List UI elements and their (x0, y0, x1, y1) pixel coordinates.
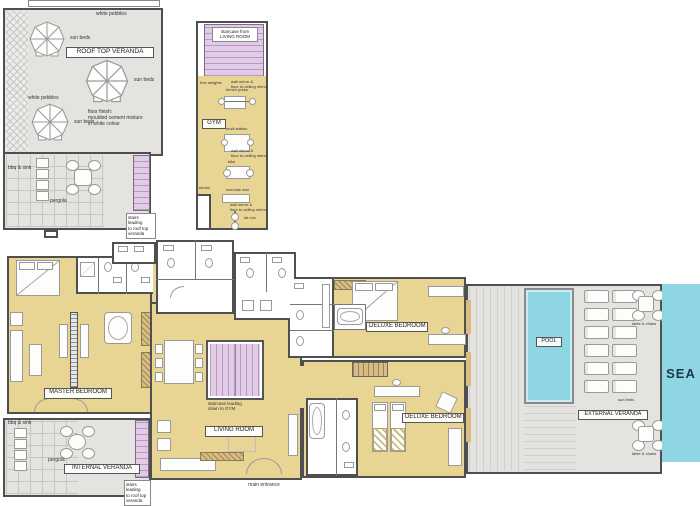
weight-stack (247, 139, 254, 146)
parapet (28, 0, 160, 7)
bathroom-wall (195, 240, 196, 280)
living-room-title: LIVING ROOM (205, 426, 263, 437)
chair (82, 426, 95, 437)
sun-beds-label: sun beds (618, 398, 634, 403)
stairs-note: stairs leading to roof top veranda (124, 480, 151, 506)
master-bedroom-title: MASTER BEDROOM (44, 388, 112, 399)
chair (155, 358, 163, 368)
white-pebbles-label-left: white pebbles (28, 96, 59, 102)
tv-bench (288, 414, 298, 456)
bench-press-label: bench press (226, 88, 248, 93)
armchair (10, 312, 23, 326)
wc (246, 268, 254, 278)
gym-notch (198, 194, 211, 228)
sun-lounger (584, 326, 609, 339)
chair (155, 344, 163, 354)
wc (104, 262, 112, 272)
sun-lounger (584, 290, 609, 303)
sun-lounger (584, 308, 609, 321)
bbq-counter (14, 461, 27, 471)
counter (322, 284, 330, 328)
floor-finish-note: floor finish: moulded cement mixture in … (88, 110, 150, 127)
planter (466, 300, 471, 334)
exercise-mat-label: exercise mat (226, 188, 249, 193)
shelf (80, 324, 89, 358)
lat-machine-seat (231, 213, 239, 221)
desk (428, 334, 466, 345)
sofa (10, 330, 23, 382)
chair (155, 372, 163, 382)
multi-station-label: multi station (226, 127, 247, 132)
table-label: table & chairs (632, 452, 656, 457)
sun-lounger (612, 344, 637, 357)
deluxe-bedroom-2-title: DELUXE BEDROOM (402, 413, 464, 423)
basin (113, 277, 122, 283)
white-pebbles-label-top: white pebbles (96, 12, 127, 18)
bbq-sink-label: bbq & sink (8, 166, 31, 172)
internal-veranda-title: INTERNAL VERANDA (64, 464, 140, 474)
deck-planks (469, 287, 521, 471)
desk (374, 386, 420, 397)
bathtub-basin (108, 316, 128, 340)
shower (80, 262, 95, 277)
chair (82, 448, 95, 459)
sun-lounger (584, 362, 609, 375)
sun-lounger (612, 380, 637, 393)
entry-deck (200, 452, 244, 461)
pergola-label: pergola (50, 199, 67, 205)
sea: SEA (662, 284, 700, 462)
appliance (242, 300, 254, 311)
gym-title: GYM (202, 119, 226, 129)
bench-press (224, 96, 246, 109)
pillow (355, 283, 373, 291)
parasol-icon (30, 102, 70, 142)
external-veranda-title: EXTERNAL VERANDA (578, 410, 648, 420)
basin (141, 277, 150, 283)
planter (466, 352, 471, 386)
bbq-counter (14, 428, 27, 438)
deluxe-bedroom-1-title: DELUXE BEDROOM (366, 322, 428, 332)
free-weights-label: free weights (200, 81, 222, 86)
desk-chair (441, 327, 450, 334)
basin (240, 257, 250, 263)
basin (118, 246, 128, 252)
duvet (391, 428, 405, 451)
bathtub-basin (340, 311, 360, 322)
pillow (374, 404, 386, 411)
table-label: table & chairs (632, 322, 656, 327)
sun-lounger (584, 344, 609, 357)
wc (342, 410, 350, 420)
parasol-icon (84, 58, 130, 104)
bbq-counter (36, 169, 49, 179)
basin (163, 245, 174, 251)
bike-wheel (223, 169, 231, 177)
bathroom-wall (290, 330, 334, 331)
bathtub-basin (312, 407, 322, 435)
lat-machine-seat (231, 222, 239, 230)
main-entrance-label: main entrance (240, 483, 288, 489)
white-pebbles-strip (6, 11, 28, 153)
table (74, 169, 92, 186)
bbq-counter (14, 450, 27, 460)
basin (201, 245, 212, 251)
table (68, 434, 86, 450)
bbq-counter (36, 180, 49, 190)
stairs-note: stairs leading to roof top veranda (126, 213, 156, 239)
pool-title: POOL (536, 337, 562, 347)
weight-plate (249, 98, 256, 105)
bbq-counter (36, 158, 49, 168)
wc (296, 310, 304, 320)
planter (466, 408, 471, 442)
chair (195, 344, 203, 354)
sun-beds-label: sun beds (70, 36, 90, 42)
wall-mirror-label: wall mirror & floor to ceiling mirror (231, 149, 267, 158)
wc (167, 258, 175, 268)
armchair (157, 438, 171, 451)
sun-beds-label: sun beds (134, 78, 154, 84)
table (638, 296, 654, 312)
wc (205, 258, 213, 268)
bbq-counter (14, 439, 27, 449)
table (638, 426, 654, 442)
sun-lounger (612, 326, 637, 339)
bench (428, 286, 464, 297)
chair (195, 372, 203, 382)
sea-title: SEA (662, 366, 700, 381)
wc (296, 336, 304, 346)
chair (88, 184, 101, 195)
bathroom-wall (98, 258, 99, 294)
sun-lounger (584, 380, 609, 393)
bike-label: bike (228, 160, 235, 165)
coffee-table (29, 344, 42, 376)
weight-stack (221, 139, 228, 146)
sun-lounger (612, 362, 637, 375)
wall-mirror-label: wall mirror & floor to ceiling mirror (230, 203, 266, 212)
bathroom-wall (336, 398, 337, 476)
desk-chair (392, 379, 401, 386)
duvet (373, 428, 387, 451)
wall-stub (44, 230, 58, 238)
pillow (375, 283, 393, 291)
stairs-to-roof (133, 155, 150, 211)
wardrobe-partition (70, 312, 78, 388)
shelf (59, 324, 68, 358)
basin (134, 246, 144, 252)
pillow (19, 262, 35, 270)
rooftop-veranda-title: ROOF TOP VERANDA (66, 47, 154, 58)
pillow (37, 262, 53, 270)
bathroom-wall (266, 252, 267, 292)
hall-doorway (298, 366, 306, 408)
armchair (157, 420, 171, 433)
pillow (392, 404, 404, 411)
sofa (448, 428, 462, 466)
bench-label: bench (199, 186, 210, 191)
staircase-note: staircase leading down to GYM (208, 401, 242, 411)
bbq-sink-label: bbq & sink (8, 421, 31, 427)
pool-deck (524, 406, 576, 470)
parasol-icon (28, 20, 66, 58)
wc (278, 268, 286, 278)
stair-rail (235, 344, 236, 396)
appliance (260, 300, 272, 311)
wc (342, 442, 350, 452)
pergola-label: pergola (48, 458, 65, 464)
dining-table (164, 340, 194, 384)
hall-steps (352, 362, 388, 377)
bathroom-wall (156, 279, 234, 280)
gym-staircase-label: staircase from LIVING ROOM (212, 27, 258, 42)
chair (195, 358, 203, 368)
weight-plate (218, 98, 225, 105)
lat-machine-label: lat m/c (244, 216, 256, 221)
bike-wheel (246, 169, 254, 177)
basin (344, 462, 354, 468)
basin (272, 257, 282, 263)
bbq-counter (36, 191, 49, 201)
basin (294, 283, 304, 289)
